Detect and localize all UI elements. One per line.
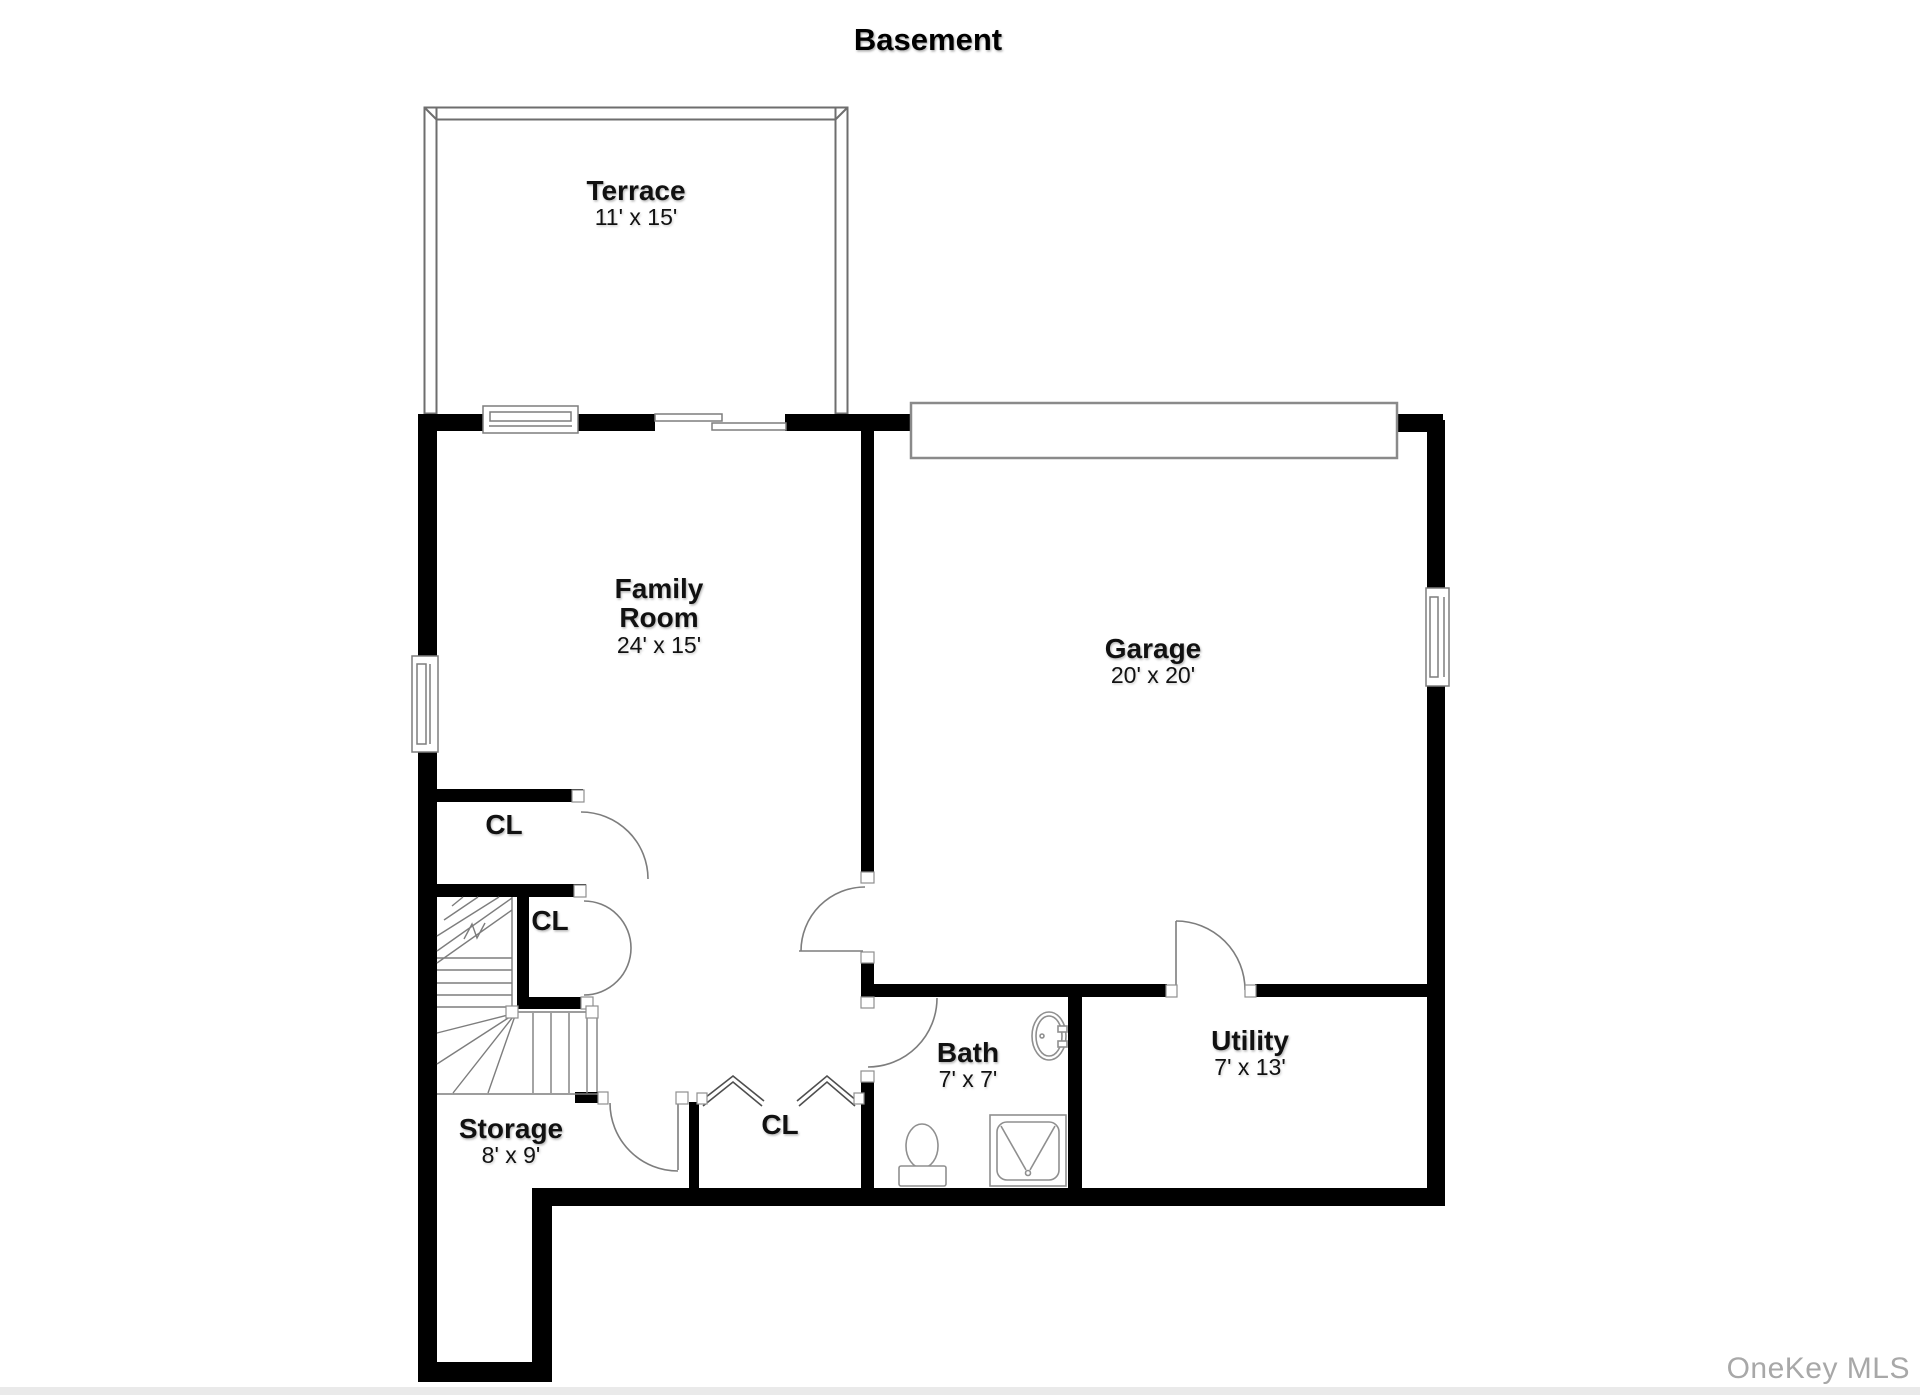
bath-door <box>868 998 937 1067</box>
plan-title: Basement <box>854 22 1002 58</box>
window-left <box>412 656 438 752</box>
shower <box>990 1115 1066 1186</box>
garage-label: Garage 20' x 20' <box>1105 634 1202 688</box>
storage-label: Storage 8' x 9' <box>459 1114 563 1168</box>
closet-hall-label: CL <box>761 1109 798 1141</box>
closet-middle-double-door <box>584 901 631 995</box>
family-room-label: Family Room 24' x 15' <box>589 574 729 657</box>
door-jambs <box>506 790 1256 1104</box>
utility-name: Utility <box>1211 1026 1289 1055</box>
newel-post <box>586 1006 598 1018</box>
bath-label: Bath 7' x 7' <box>937 1038 999 1092</box>
bath-name: Bath <box>937 1038 999 1067</box>
utility-door <box>1176 921 1245 990</box>
storage-door <box>610 1103 678 1171</box>
garage-door <box>911 403 1397 458</box>
floorplan-page: Basement Terrace 11' x 15' Family Room 2… <box>0 0 1920 1395</box>
sink <box>1032 1012 1067 1060</box>
family-room-dims: 24' x 15' <box>589 633 729 657</box>
closet-middle-label: CL <box>531 905 568 937</box>
newel-post <box>506 1006 518 1018</box>
utility-label: Utility 7' x 13' <box>1211 1026 1289 1080</box>
terrace-dims: 11' x 15' <box>586 205 685 229</box>
floorplan-drawing <box>0 0 1920 1395</box>
garage-name: Garage <box>1105 634 1202 663</box>
bath-dims: 7' x 7' <box>937 1067 999 1091</box>
closet-upper-door <box>581 812 648 879</box>
sliding-door <box>655 414 786 430</box>
exterior-walls <box>418 414 1445 1382</box>
window-right <box>1426 588 1449 686</box>
garage-entry-door <box>799 887 865 951</box>
closet-upper-label: CL <box>485 809 522 841</box>
image-bottom-strip <box>0 1387 1920 1395</box>
terrace-walls <box>425 108 848 414</box>
family-room-name: Family Room <box>589 574 729 633</box>
toilet <box>899 1124 946 1186</box>
window-top <box>483 406 578 433</box>
terrace-name: Terrace <box>586 176 685 205</box>
bifold-doors <box>701 1076 857 1106</box>
storage-dims: 8' x 9' <box>459 1143 563 1167</box>
utility-dims: 7' x 13' <box>1211 1055 1289 1079</box>
storage-name: Storage <box>459 1114 563 1143</box>
terrace-label: Terrace 11' x 15' <box>586 176 685 230</box>
mls-watermark: OneKey MLS <box>1727 1352 1910 1386</box>
garage-dims: 20' x 20' <box>1105 663 1202 687</box>
